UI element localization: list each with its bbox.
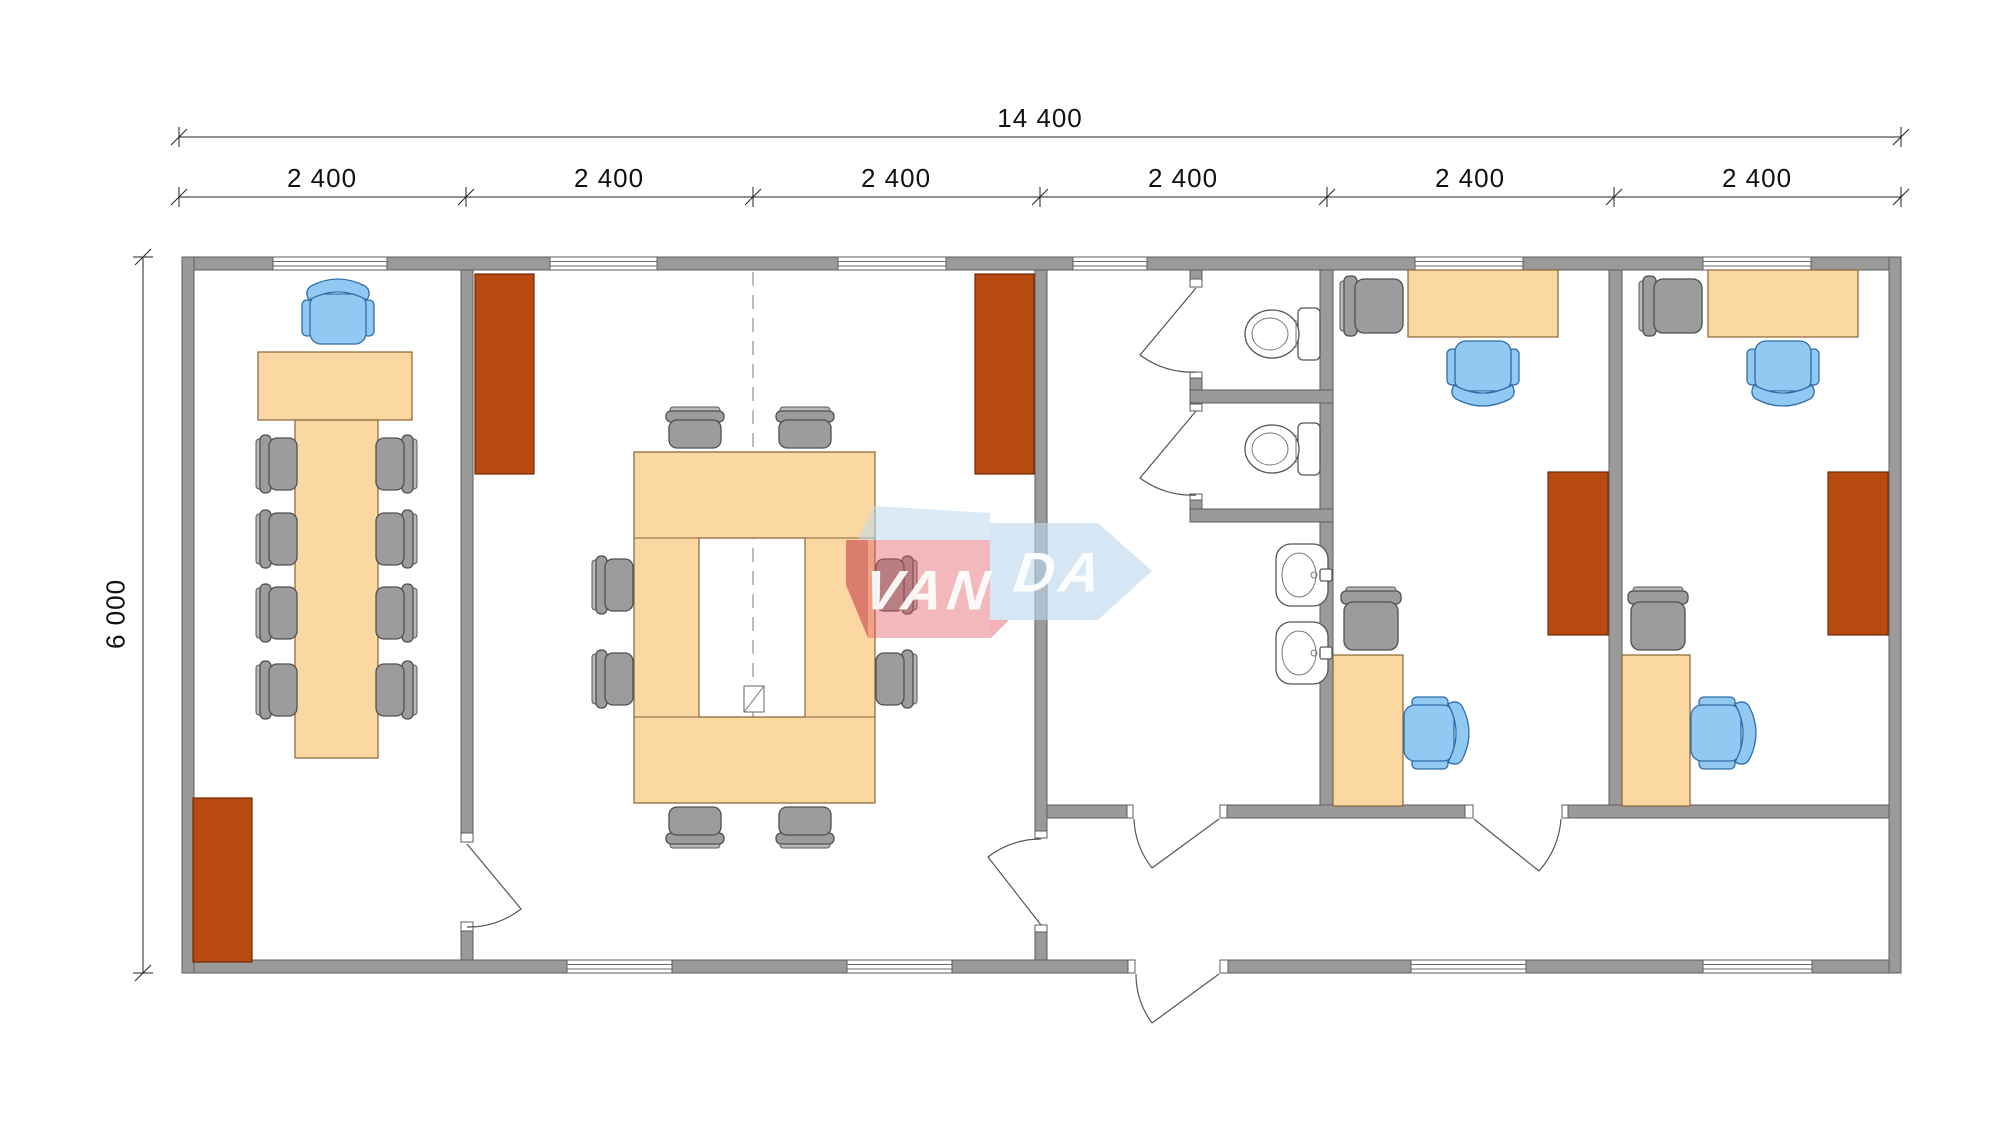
vanda-logo-text-da: DA bbox=[1010, 540, 1110, 605]
toilet-2 bbox=[1245, 423, 1320, 475]
wc-stall-door-1 bbox=[1140, 288, 1196, 372]
meeting-room-table bbox=[295, 420, 378, 758]
window bbox=[847, 960, 952, 973]
office-1-cabinet bbox=[1548, 472, 1608, 635]
meeting-room-desk bbox=[258, 352, 412, 420]
office-1-door bbox=[1474, 819, 1561, 871]
blue-chair bbox=[1404, 697, 1469, 769]
gray-chair bbox=[1628, 587, 1688, 650]
side-chair bbox=[256, 661, 297, 719]
conference-table bbox=[634, 452, 875, 803]
side-chair bbox=[376, 510, 417, 568]
wc-stall-door-2 bbox=[1140, 411, 1196, 495]
window bbox=[550, 257, 657, 270]
vanda-logo-text-van: VAN bbox=[860, 558, 998, 623]
dimension-module-3: 2 400 bbox=[861, 163, 931, 194]
wc-fixtures bbox=[1245, 308, 1332, 684]
side-chair bbox=[592, 650, 633, 708]
sink-1 bbox=[1276, 544, 1332, 606]
conference-cabinet-right bbox=[975, 274, 1034, 474]
dimension-module-6: 2 400 bbox=[1722, 163, 1792, 194]
office-1-desk-bottom bbox=[1333, 655, 1403, 806]
window bbox=[1073, 257, 1147, 270]
gray-chair bbox=[1340, 276, 1403, 336]
office-2-desk-bottom bbox=[1622, 655, 1690, 806]
floor-hatch-marker bbox=[744, 686, 764, 712]
blue-chair bbox=[302, 279, 374, 344]
conference-cabinet-left bbox=[475, 274, 534, 474]
office-2-furniture bbox=[1622, 270, 1888, 806]
dimension-module-1: 2 400 bbox=[287, 163, 357, 194]
side-chair bbox=[376, 661, 417, 719]
office-2-cabinet bbox=[1828, 472, 1888, 635]
window bbox=[567, 960, 672, 973]
blue-chair bbox=[1747, 341, 1819, 406]
window bbox=[1703, 960, 1812, 973]
window bbox=[1411, 960, 1526, 973]
side-chair bbox=[666, 407, 724, 448]
gray-chair bbox=[1639, 276, 1702, 336]
office-2-desk-top bbox=[1708, 270, 1858, 337]
dimension-height: 6 000 bbox=[101, 579, 132, 649]
window bbox=[273, 257, 387, 270]
side-chair bbox=[256, 584, 297, 642]
side-chair bbox=[256, 510, 297, 568]
window bbox=[838, 257, 946, 270]
window bbox=[1415, 257, 1523, 270]
dimension-module-4: 2 400 bbox=[1148, 163, 1218, 194]
conference-door bbox=[988, 839, 1041, 925]
meeting-room-furniture bbox=[193, 279, 417, 962]
dimension-module-5: 2 400 bbox=[1435, 163, 1505, 194]
blue-chair bbox=[1691, 697, 1756, 769]
floor-plan-canvas: 14 400 2 400 2 400 2 400 2 400 2 400 2 4… bbox=[0, 0, 2000, 1147]
side-chair bbox=[876, 650, 917, 708]
dimension-module-2: 2 400 bbox=[574, 163, 644, 194]
side-chair bbox=[256, 435, 297, 493]
side-chair bbox=[592, 556, 633, 614]
side-chair bbox=[376, 584, 417, 642]
office-1-desk-top bbox=[1408, 270, 1558, 337]
entrance-door bbox=[1136, 974, 1219, 1023]
side-chair bbox=[666, 807, 724, 848]
window bbox=[1703, 257, 1811, 270]
meeting-conference-door bbox=[467, 844, 521, 927]
side-chair bbox=[776, 807, 834, 848]
gray-chair bbox=[1341, 587, 1401, 650]
office-1-furniture bbox=[1333, 270, 1608, 806]
lobby-corridor-door bbox=[1134, 819, 1219, 868]
side-chair bbox=[376, 435, 417, 493]
toilet-1 bbox=[1245, 308, 1320, 360]
meeting-room-cabinet bbox=[193, 798, 252, 962]
blue-chair bbox=[1447, 341, 1519, 406]
side-chair bbox=[776, 407, 834, 448]
dimension-total-width: 14 400 bbox=[997, 103, 1083, 134]
sink-2 bbox=[1276, 622, 1332, 684]
